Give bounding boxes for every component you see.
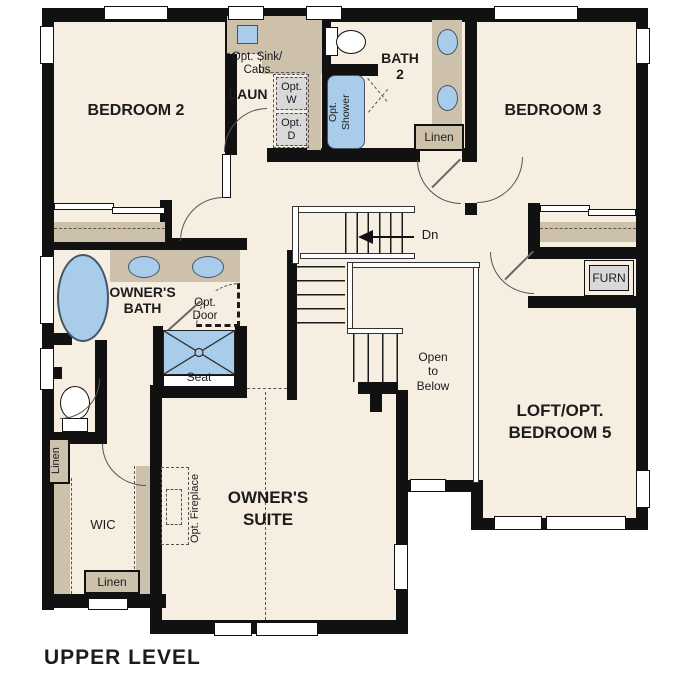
floor-loft: [480, 480, 642, 520]
linen-cabinet-bottom: Linen: [84, 570, 140, 594]
owners-bath-sink: [128, 256, 160, 278]
bedroom2-closet-bypass-door: [54, 203, 114, 210]
suite-entry-dash: [247, 388, 287, 389]
bedroom2-label: BEDROOM 2: [74, 102, 198, 120]
open-to-below-label: Open to Below: [405, 350, 461, 393]
wall-stairs-bottom-stub: [370, 394, 382, 412]
owners-suite-label: OWNER'S SUITE: [200, 487, 336, 531]
opt-shower-label: Opt. Shower: [327, 75, 365, 149]
wall-stairs-left: [287, 250, 297, 400]
window: [546, 516, 626, 530]
bedroom3-closet-shelf: [540, 222, 636, 242]
floor-plan: Opt. W Opt. D Opt. Sink/ Cabs LAUN Opt. …: [0, 0, 687, 687]
stairs-down-arrow-head: [358, 230, 373, 244]
owners-bath-label: OWNER'S BATH: [100, 284, 185, 316]
toilet-bowl: [336, 30, 366, 54]
washer-box: Opt. W: [276, 77, 307, 110]
wic-shelf-dash: [71, 478, 72, 594]
window: [636, 470, 650, 508]
bedroom2-door-leaf: [222, 154, 231, 198]
open-below-railing-left: [347, 262, 353, 334]
window: [214, 622, 252, 636]
window: [40, 26, 54, 64]
washer-label: Opt.: [281, 81, 302, 93]
stairs-upper-flight: [345, 213, 413, 257]
window: [40, 256, 54, 324]
window: [228, 6, 264, 20]
window: [394, 544, 408, 590]
linen-cabinet-side: Linen: [48, 438, 70, 484]
bedroom3-closet-bypass-door: [540, 205, 590, 212]
wall-furnace-top: [528, 247, 648, 259]
stairs-down-arrow-line: [372, 236, 414, 238]
window: [494, 6, 578, 20]
washer-label: W: [286, 94, 296, 106]
stairs-lower-flight: [353, 334, 398, 382]
stairs-railing-top: [292, 206, 415, 213]
page-title: UPPER LEVEL: [44, 646, 324, 670]
bedroom3-closet-bypass-door: [588, 209, 636, 216]
wic-shelf-left: [54, 478, 70, 594]
wall-suite-top: [150, 386, 247, 398]
window: [40, 348, 54, 390]
laundry-opt-sink-label: Opt. Sink/ Cabs: [218, 51, 296, 77]
furnace-box: FURN: [589, 265, 629, 291]
opt-fireplace-inner: [166, 489, 182, 525]
bath2-linen-cabinet: Linen: [414, 124, 464, 151]
stairs-railing-left: [292, 206, 299, 264]
wall-bedroom3-left: [465, 14, 477, 154]
loft-label: LOFT/OPT. BEDROOM 5: [480, 400, 640, 444]
bedroom2-closet-shelf: [54, 222, 165, 242]
dryer-label: Opt.: [281, 117, 302, 129]
window: [306, 6, 342, 20]
owners-bath-sink: [192, 256, 224, 278]
laundry-sink: [237, 25, 258, 44]
stairs-down-label: Dn: [416, 228, 444, 243]
bedroom3-label: BEDROOM 3: [490, 102, 616, 120]
window: [636, 28, 650, 64]
bedroom3-closet-rod-line: [540, 228, 636, 229]
wall-right: [636, 8, 648, 530]
bedroom2-closet-rod-line: [54, 228, 165, 229]
wall-bath-toilet-divider: [42, 333, 72, 345]
toilet-tank: [62, 418, 88, 432]
shower-seat-label: Seat: [163, 371, 235, 385]
loft-railing: [473, 267, 479, 483]
dryer-box: Opt. D: [276, 113, 307, 146]
wall-stairs-bottom: [358, 382, 398, 394]
bath2-label: BATH 2: [372, 50, 428, 82]
stairs-mid-flight: [297, 266, 345, 324]
bath2-sink: [437, 85, 458, 111]
owners-shower: [163, 330, 235, 375]
bath2-sink: [437, 29, 458, 55]
window: [256, 622, 318, 636]
wall-bedroom3-left-stub: [465, 203, 477, 215]
laundry-cabinet-strip: [307, 72, 321, 150]
opt-fireplace-label: Opt. Fireplace: [189, 462, 205, 554]
wall-suite-right: [396, 390, 408, 634]
window: [104, 6, 168, 20]
wic-label: WIC: [75, 518, 131, 533]
dryer-label: D: [288, 130, 296, 142]
stairs-landing-edge: [300, 253, 415, 259]
window: [494, 516, 542, 530]
window: [410, 479, 446, 492]
open-below-railing-top: [347, 262, 480, 268]
wall-laundry-bath2-bottom: [267, 148, 420, 162]
laundry-label: LAUN: [222, 86, 274, 102]
wall-furnace-bottom: [528, 296, 648, 308]
window: [88, 598, 128, 610]
bedroom2-closet-bypass-door: [112, 207, 165, 214]
